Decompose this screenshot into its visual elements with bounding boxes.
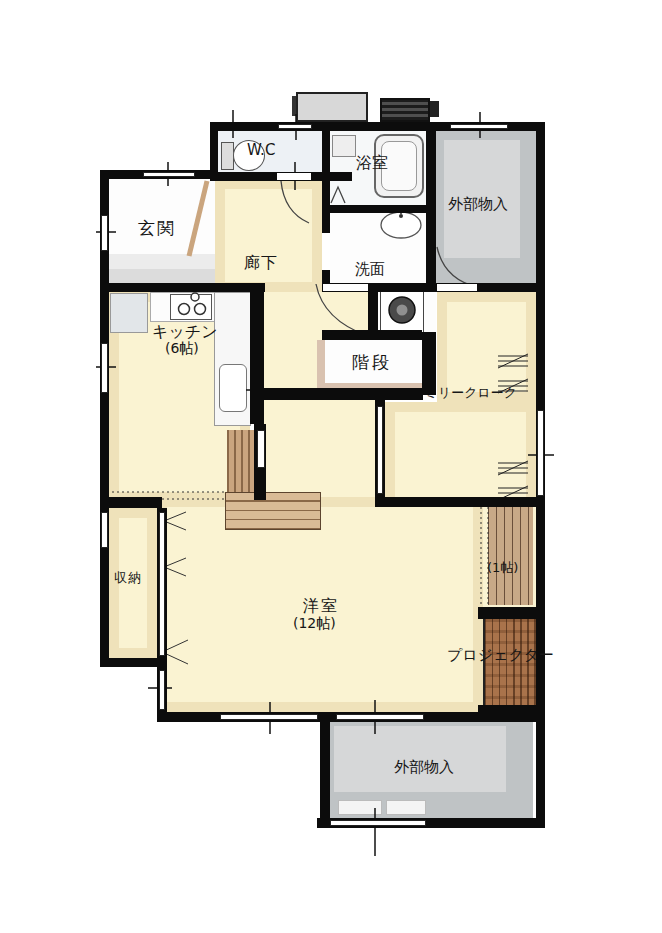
hallway-label: 廊下 — [244, 255, 278, 272]
window — [257, 430, 265, 468]
wall-segment — [262, 388, 423, 400]
kitchen-size-label: (6帖) — [165, 341, 199, 356]
nook-size-label: (1帖) — [487, 561, 518, 575]
window — [143, 172, 195, 177]
projector-label: プロジェクター — [447, 648, 554, 664]
window — [101, 512, 108, 548]
wall-segment — [100, 497, 162, 508]
wall-segment — [478, 705, 536, 719]
wall-segment — [100, 283, 265, 292]
wall-segment — [426, 131, 436, 292]
sliding-door — [159, 512, 165, 656]
window — [377, 406, 383, 494]
window — [450, 124, 508, 129]
window — [278, 124, 312, 129]
wall-segment — [375, 497, 536, 507]
wall-segment — [100, 658, 164, 667]
wall-segment — [322, 131, 330, 233]
washroom-label: 洗面 — [355, 262, 385, 278]
living-size-label: (12帖) — [293, 616, 336, 631]
stairs-label: 階段 — [352, 354, 392, 372]
floor-plan: 玄関 W.C 浴室 外部物入 廊下 洗面 キッチン (6帖) 階段 ファミリーク… — [0, 0, 662, 933]
wall-segment — [422, 340, 436, 395]
storage-bottom-label: 外部物入 — [394, 760, 454, 776]
living-label: 洋室 — [303, 598, 339, 615]
bathroom-label: 浴室 — [356, 155, 388, 172]
wall-segment — [330, 205, 428, 213]
window — [336, 714, 424, 720]
kitchen-label: キッチン — [152, 324, 218, 341]
window — [220, 714, 318, 720]
genkan-step-diagonal — [189, 181, 207, 256]
washing-machine-drum-icon — [389, 297, 415, 323]
genkan-label: 玄関 — [138, 220, 176, 238]
wall-segment — [322, 330, 422, 340]
wc-label: W.C — [247, 143, 275, 159]
hanger-marks-icon — [498, 354, 528, 500]
window — [101, 343, 108, 393]
door-opening — [323, 284, 368, 291]
window — [330, 820, 426, 826]
wall-segment — [250, 292, 264, 424]
storage-top-label: 外部物入 — [448, 197, 508, 213]
door-opening — [277, 173, 311, 180]
door-opening — [437, 284, 477, 291]
window — [537, 410, 544, 496]
closet-label: 収納 — [114, 571, 142, 585]
stove-burners-icon — [179, 293, 206, 315]
wall-segment — [478, 607, 536, 619]
window — [101, 215, 108, 251]
window — [159, 670, 165, 710]
wall-segment — [320, 712, 330, 828]
